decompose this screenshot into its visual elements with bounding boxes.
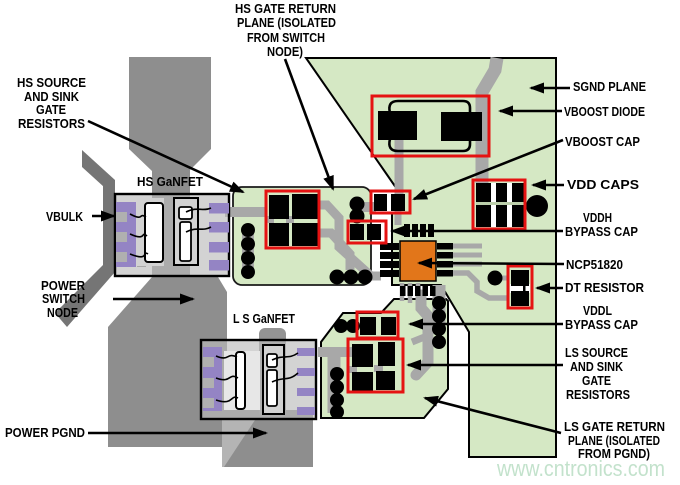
svg-text:DT RESISTOR: DT RESISTOR [565, 280, 645, 295]
svg-text:VDDL: VDDL [583, 303, 612, 318]
svg-text:PLANE (ISOLATED: PLANE (ISOLATED [237, 15, 336, 30]
svg-text:LS GATE RETURN: LS GATE RETURN [564, 419, 665, 434]
svg-text:NCP51820: NCP51820 [566, 257, 623, 272]
svg-text:SWITCH: SWITCH [42, 291, 85, 306]
svg-text:HS GaNFET: HS GaNFET [137, 174, 203, 189]
svg-text:VBOOST CAP: VBOOST CAP [565, 134, 640, 149]
svg-text:SGND PLANE: SGND PLANE [573, 79, 646, 94]
svg-text:HS SOURCE: HS SOURCE [17, 75, 86, 90]
svg-text:BYPASS CAP: BYPASS CAP [565, 317, 638, 332]
svg-text:VBOOST DIODE: VBOOST DIODE [564, 104, 645, 119]
svg-text:www.cntronics.com: www.cntronics.com [496, 456, 665, 481]
svg-text:LS SOURCE: LS SOURCE [565, 345, 628, 360]
svg-text:RESISTORS: RESISTORS [566, 387, 630, 402]
svg-text:L S GaNFET: L S GaNFET [233, 311, 295, 326]
svg-text:RESISTORS: RESISTORS [18, 116, 85, 131]
svg-text:FROM SWITCH: FROM SWITCH [247, 30, 325, 45]
svg-text:GATE: GATE [582, 373, 611, 388]
svg-text:GATE: GATE [36, 102, 66, 117]
svg-text:NODE: NODE [47, 305, 78, 320]
svg-text:HS GATE RETURN: HS GATE RETURN [235, 1, 336, 16]
svg-text:NODE): NODE) [267, 44, 303, 59]
svg-text:BYPASS CAP: BYPASS CAP [565, 224, 638, 239]
svg-text:AND SINK: AND SINK [570, 359, 624, 374]
svg-text:VDD CAPS: VDD CAPS [567, 177, 639, 192]
svg-text:VDDH: VDDH [583, 210, 612, 225]
svg-text:VBULK: VBULK [46, 209, 84, 224]
svg-text:POWER PGND: POWER PGND [5, 425, 85, 440]
